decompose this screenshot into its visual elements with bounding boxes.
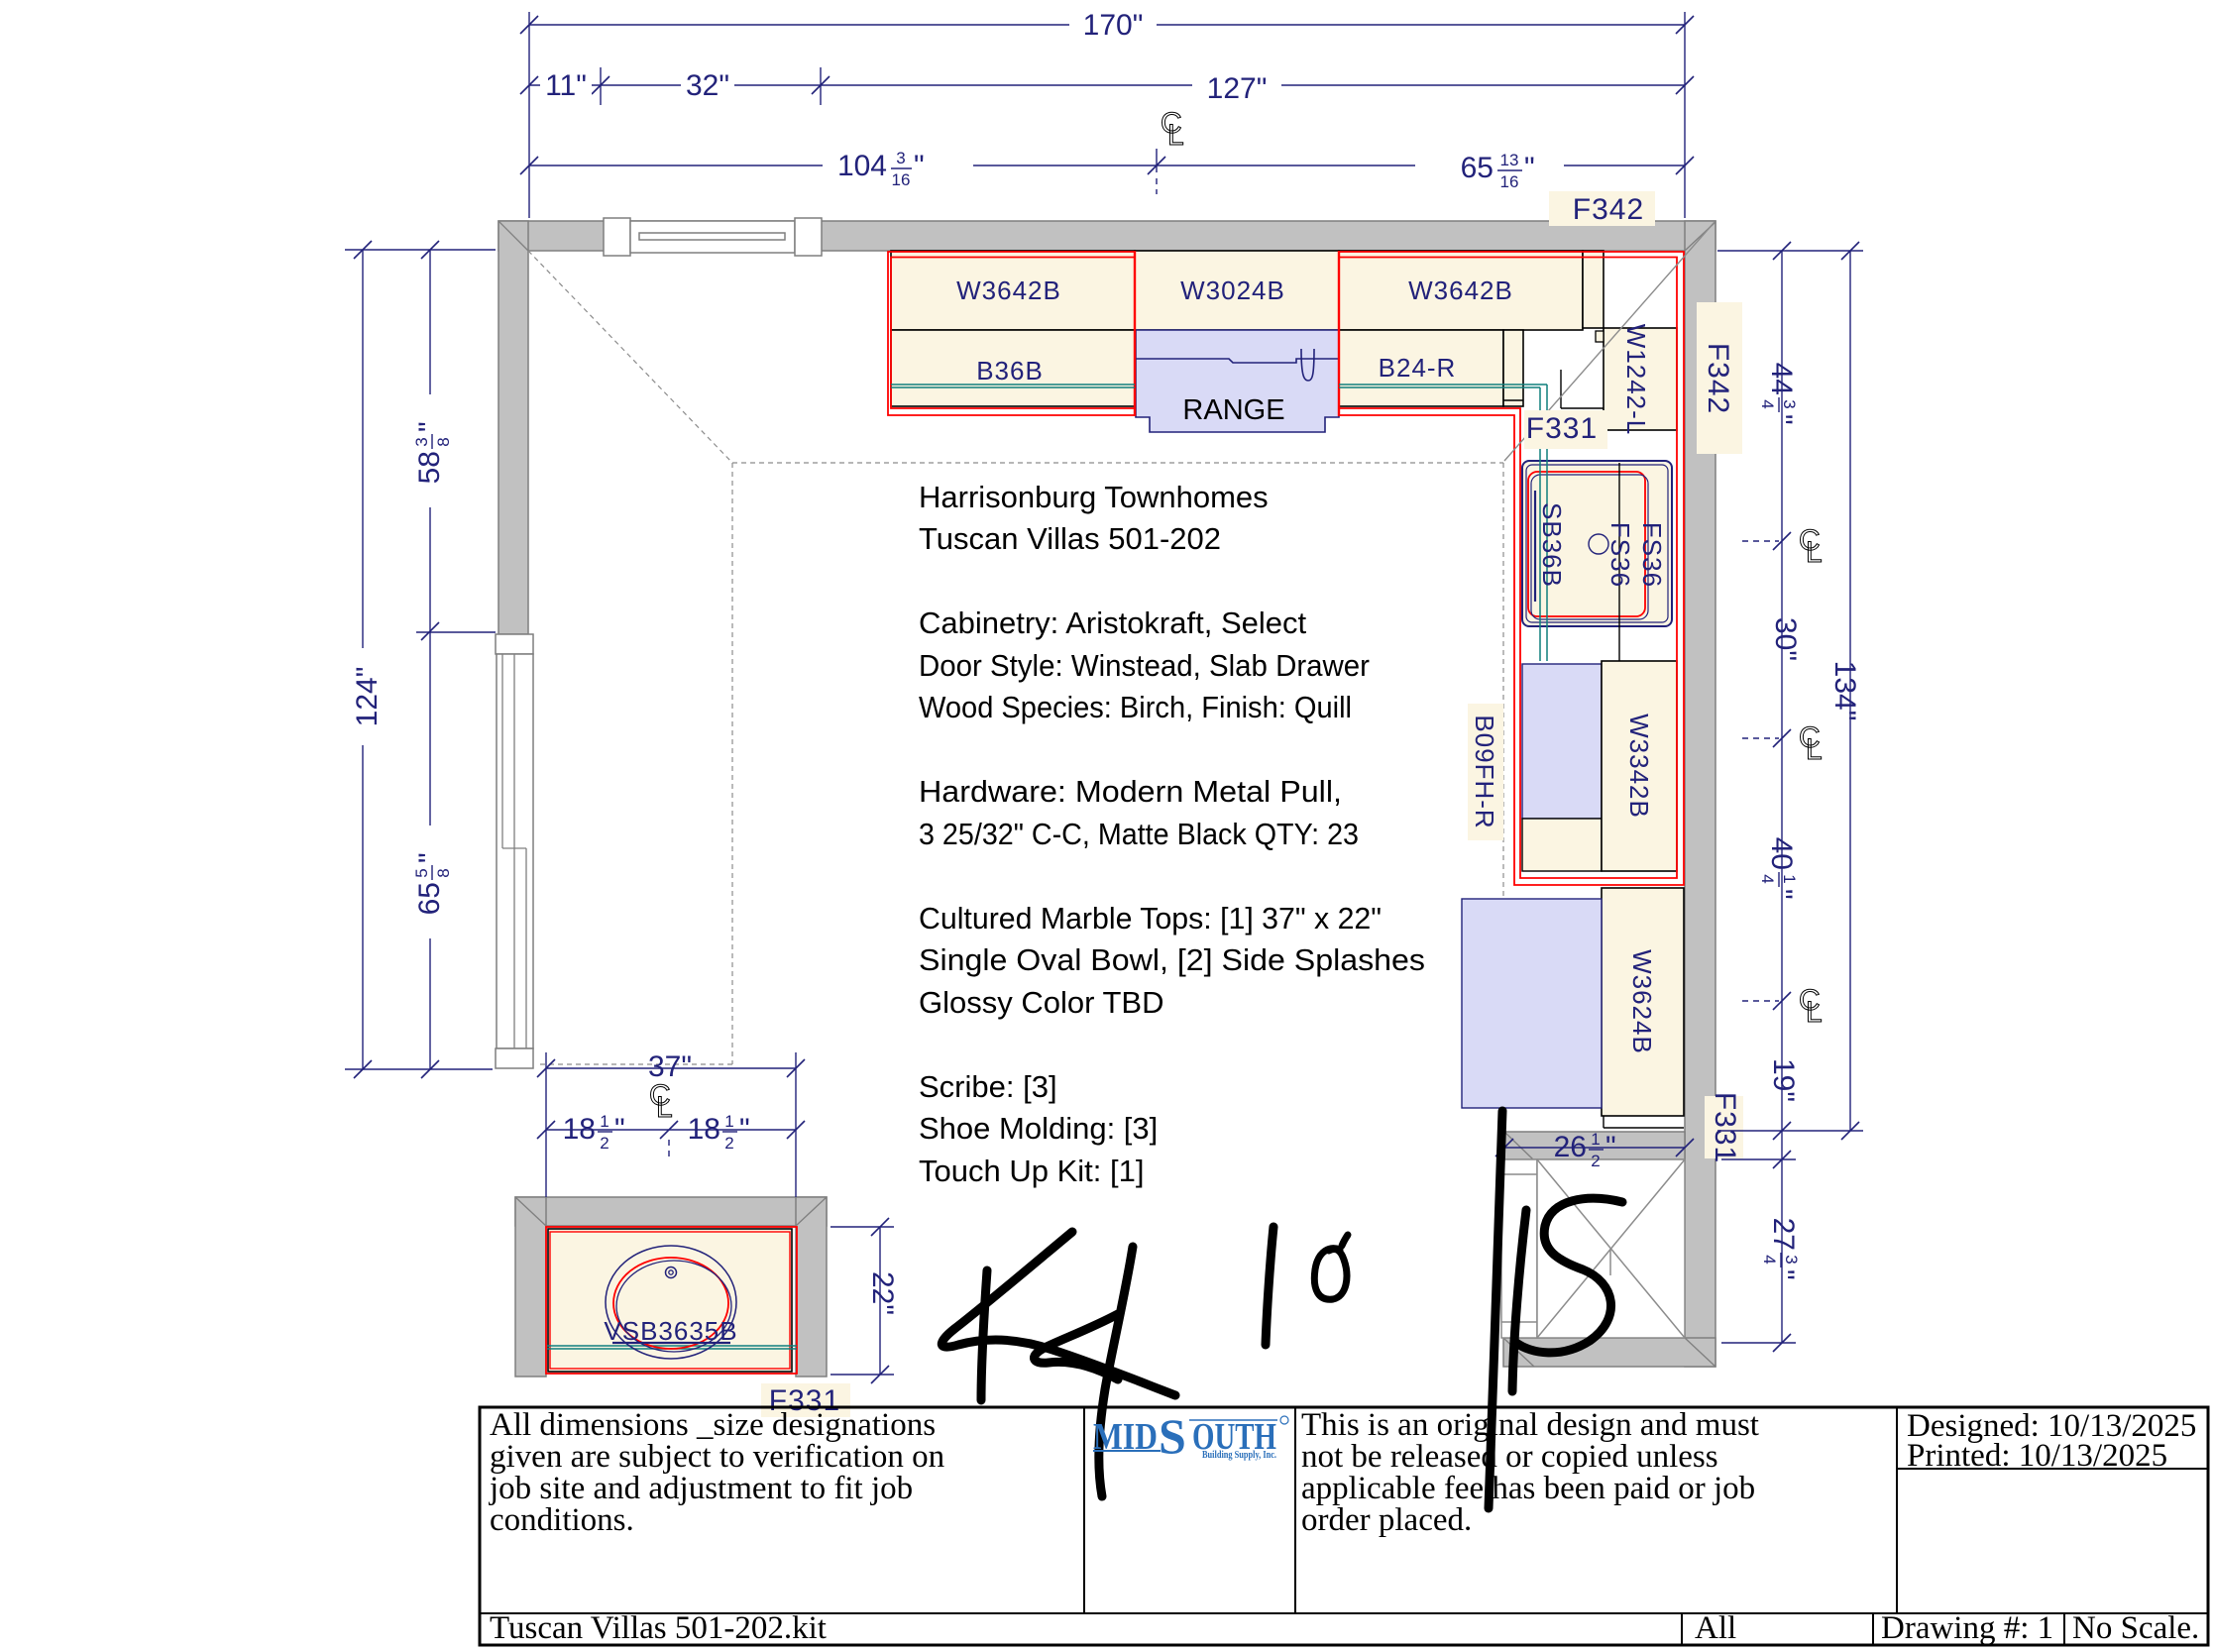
svg-text:16: 16 (892, 170, 911, 189)
svg-text:No Scale.: No Scale. (2072, 1610, 2199, 1646)
svg-text:26: 26 (1554, 1131, 1587, 1163)
svg-text:": " (413, 852, 446, 863)
svg-text:2: 2 (600, 1134, 609, 1153)
svg-text:B09FH-R: B09FH-R (1470, 715, 1499, 828)
svg-text:W3624B: W3624B (1627, 949, 1657, 1054)
svg-text:22": 22" (866, 1271, 899, 1315)
svg-text:65: 65 (1461, 152, 1494, 184)
svg-text:Tuscan Villas 501-202: Tuscan Villas 501-202 (919, 521, 1221, 556)
svg-text:W3642B: W3642B (956, 275, 1061, 305)
svg-text:job site and adjustment to fit: job site and adjustment to fit job (489, 1471, 913, 1506)
svg-text:L: L (1806, 536, 1823, 569)
svg-text:Tuscan Villas 501-202.kit: Tuscan Villas 501-202.kit (490, 1610, 827, 1646)
svg-text:FS36: FS36 (1605, 522, 1635, 588)
svg-text:RANGE: RANGE (1182, 394, 1284, 426)
svg-text:SB36B: SB36B (1537, 502, 1567, 588)
svg-text:VSB3635B: VSB3635B (604, 1316, 737, 1346)
svg-text:124": 124" (351, 667, 384, 727)
svg-text:applicable fee has been paid o: applicable fee has been paid or job (1301, 1471, 1755, 1506)
svg-text:": " (1524, 152, 1535, 184)
svg-text:1: 1 (600, 1112, 609, 1131)
svg-text:1: 1 (1591, 1130, 1600, 1149)
svg-text:order placed.: order placed. (1301, 1502, 1472, 1538)
svg-text:L: L (1167, 119, 1184, 152)
svg-text:127": 127" (1207, 72, 1268, 105)
svg-text:": " (739, 1113, 750, 1146)
svg-text:": " (1605, 1131, 1616, 1163)
svg-text:30": 30" (1769, 617, 1802, 661)
svg-text:W3024B: W3024B (1180, 275, 1285, 305)
svg-text:B24-R: B24-R (1379, 353, 1457, 383)
svg-text:W3342B: W3342B (1624, 714, 1654, 819)
svg-text:F331: F331 (1709, 1092, 1741, 1163)
svg-text:3: 3 (896, 149, 905, 167)
svg-text:3: 3 (412, 437, 431, 446)
svg-text:8: 8 (434, 868, 453, 877)
svg-text:F342: F342 (1573, 193, 1644, 226)
svg-text:40: 40 (1765, 837, 1798, 870)
svg-text:W1242-L: W1242-L (1621, 324, 1651, 436)
svg-text:": " (1765, 889, 1798, 900)
svg-text:32": 32" (686, 69, 729, 102)
svg-text:conditions.: conditions. (490, 1502, 634, 1538)
svg-text:Cultured Marble Tops: [1] 37": Cultured Marble Tops: [1] 37" x 22" (919, 901, 1382, 936)
svg-text:Shoe Molding: [3]: Shoe Molding: [3] (919, 1111, 1158, 1146)
svg-text:4: 4 (1758, 874, 1777, 883)
svg-text:Hardware: Modern Metal Pull,: Hardware: Modern Metal Pull, (919, 774, 1342, 809)
svg-text:F342: F342 (1702, 343, 1734, 414)
svg-text:18: 18 (688, 1113, 720, 1146)
svg-text:All: All (1695, 1610, 1736, 1646)
svg-text:65: 65 (413, 882, 446, 915)
svg-text:Cabinetry: Aristokraft, Select: Cabinetry: Aristokraft, Select (919, 606, 1306, 640)
svg-text:8: 8 (434, 437, 453, 446)
svg-text:27: 27 (1767, 1218, 1800, 1251)
svg-text:3: 3 (1780, 399, 1799, 408)
svg-text:not be released or copied unle: not be released or copied unless (1301, 1439, 1718, 1475)
svg-text:58: 58 (413, 451, 446, 484)
svg-text:All dimensions _size designati: All dimensions _size designations (490, 1407, 936, 1443)
svg-text:170": 170" (1083, 9, 1144, 42)
svg-text:104: 104 (837, 150, 887, 182)
svg-text:Wood Species: Birch, Finish: Q: Wood Species: Birch, Finish: Quill (919, 690, 1352, 724)
svg-text:Drawing #: 1: Drawing #: 1 (1881, 1610, 2053, 1646)
svg-text:16: 16 (1500, 172, 1519, 191)
svg-text:Building Supply, Inc.: Building Supply, Inc. (1202, 1450, 1276, 1461)
svg-text:Scribe: [3]: Scribe: [3] (919, 1069, 1057, 1104)
svg-text:2: 2 (724, 1134, 733, 1153)
svg-text:": " (1765, 414, 1798, 425)
svg-text:F331: F331 (1526, 412, 1598, 445)
svg-text:4: 4 (1760, 1255, 1779, 1264)
svg-text:Glossy Color TBD: Glossy Color TBD (919, 985, 1164, 1020)
svg-text:134": 134" (1828, 661, 1861, 721)
svg-text:1: 1 (724, 1112, 733, 1131)
svg-text:2: 2 (1591, 1152, 1600, 1170)
svg-text:Harrisonburg Townhomes: Harrisonburg Townhomes (919, 480, 1269, 514)
svg-text:S: S (1159, 1408, 1186, 1464)
svg-text:Door Style: Winstead, Slab Dra: Door Style: Winstead, Slab Drawer (919, 648, 1370, 683)
svg-text:Touch Up Kit: [1]: Touch Up Kit: [1] (919, 1154, 1144, 1188)
svg-text:4: 4 (1758, 399, 1777, 408)
svg-text:11": 11" (545, 69, 587, 102)
svg-text:": " (1767, 1269, 1800, 1280)
svg-text:13: 13 (1500, 151, 1519, 169)
svg-text:B36B: B36B (976, 356, 1044, 385)
svg-text:": " (914, 150, 925, 182)
svg-text:Single Oval Bowl, [2] Side Spl: Single Oval Bowl, [2] Side Splashes (919, 942, 1425, 977)
svg-text:3: 3 (1782, 1255, 1801, 1264)
svg-text:44: 44 (1765, 363, 1798, 395)
svg-text:given are subject to verificat: given are subject to verification on (490, 1439, 944, 1475)
svg-text:19": 19" (1767, 1058, 1800, 1102)
svg-text:": " (614, 1113, 625, 1146)
svg-text:W3642B: W3642B (1408, 275, 1513, 305)
svg-text:Printed: 10/13/2025: Printed: 10/13/2025 (1907, 1438, 2167, 1474)
svg-text:L: L (1806, 733, 1823, 766)
svg-text:L: L (1806, 996, 1823, 1029)
svg-text:": " (413, 421, 446, 432)
svg-text:5: 5 (412, 868, 431, 877)
svg-text:1: 1 (1780, 874, 1799, 883)
svg-text:L: L (656, 1091, 673, 1124)
svg-text:3 25/32" C-C, Matte Black QTY:: 3 25/32" C-C, Matte Black QTY: 23 (919, 817, 1359, 851)
svg-text:18: 18 (563, 1113, 596, 1146)
svg-text:This is an original design and: This is an original design and must (1301, 1407, 1759, 1443)
svg-text:FS36: FS36 (1637, 522, 1667, 588)
